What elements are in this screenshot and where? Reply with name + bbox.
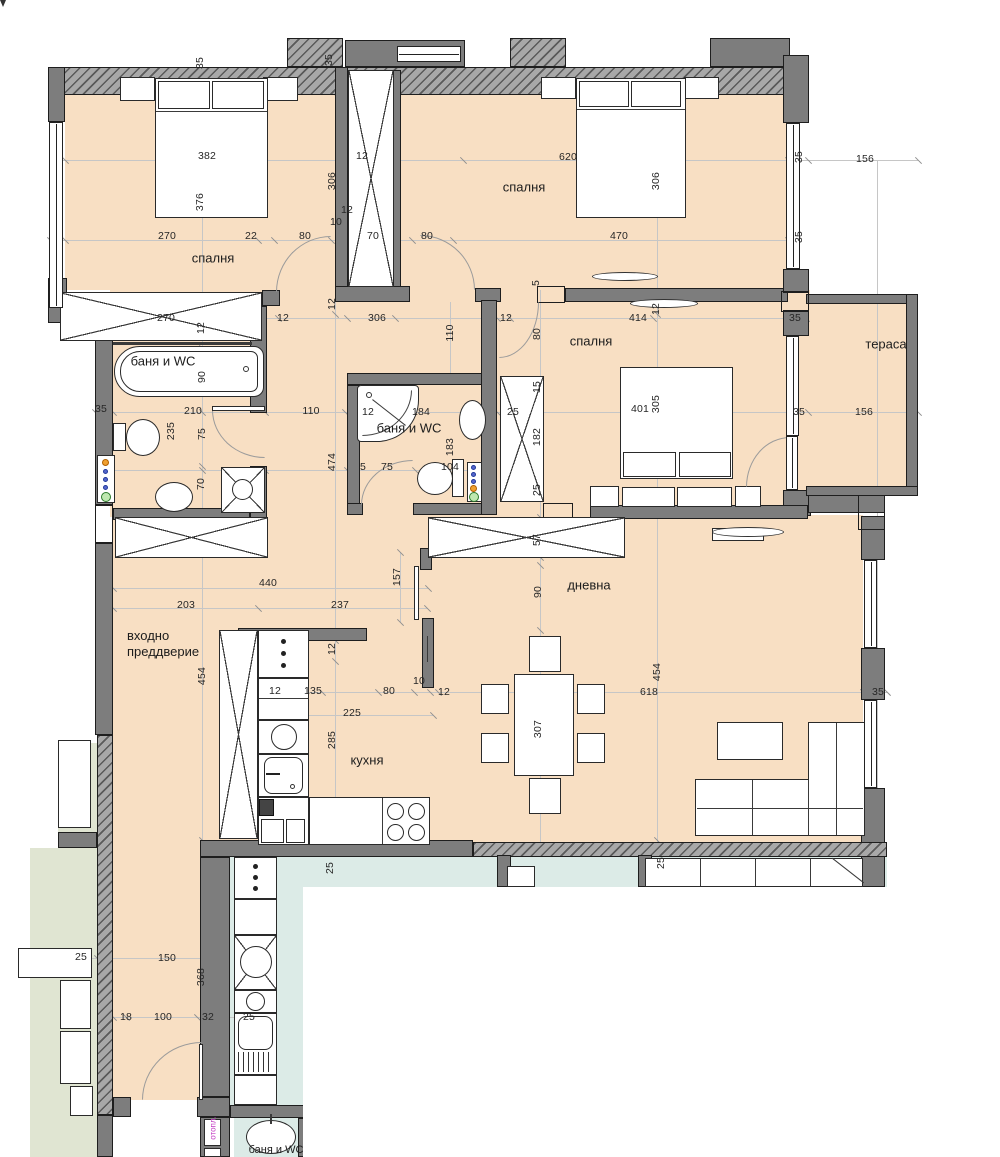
- room-label-heating-riser: отопл.: [209, 1116, 218, 1140]
- room-label-bath-1: баня и WC: [131, 354, 196, 369]
- wall-junction: [95, 505, 113, 543]
- neighbor-green-box: [70, 1086, 93, 1116]
- dim-label: 368: [195, 968, 207, 986]
- bed-line: [577, 109, 685, 110]
- window-bedroom1: [49, 122, 63, 308]
- dim-label: 182: [531, 428, 543, 446]
- dim-label: 32: [202, 1011, 214, 1023]
- dim-label: 35: [793, 231, 805, 243]
- dim-label: 10: [413, 675, 425, 687]
- dim-label: 135: [304, 685, 322, 697]
- chair: [529, 778, 561, 814]
- dim-label: 57: [531, 534, 543, 546]
- riser-dot-blue: [471, 472, 476, 477]
- riser-dot-blue: [103, 477, 108, 482]
- wardrobe: [115, 517, 268, 558]
- dim-label: 80: [299, 230, 311, 242]
- wardrobe: [219, 630, 258, 839]
- wall-bath2-top: [347, 373, 483, 385]
- dim-line: [400, 552, 401, 622]
- dim-label: 454: [651, 663, 663, 681]
- wall-door-jamb: [113, 1097, 131, 1117]
- neighbor-kitchen-unit: [234, 899, 277, 935]
- dim-label: 454: [196, 667, 208, 685]
- wall-terrace: [806, 294, 918, 304]
- dim-label: 35: [194, 57, 206, 69]
- wall-bath2-bottom: [413, 503, 483, 515]
- wall-chimney: [510, 38, 566, 67]
- neighbor-green-box: [58, 740, 91, 828]
- wall-door-jamb: [197, 1097, 230, 1117]
- dim-label: 401: [631, 403, 649, 415]
- sofa-line: [836, 723, 837, 835]
- dim-label: 382: [198, 150, 216, 162]
- sofa-divider: [700, 859, 701, 886]
- radiator: [712, 527, 784, 537]
- dining-table: [514, 674, 574, 776]
- unit-divider: [259, 698, 308, 699]
- dim-label: 307: [532, 720, 544, 738]
- riser-dot-blue: [471, 479, 476, 484]
- dim-label: 12: [356, 150, 368, 162]
- unit-dot: [281, 663, 286, 668]
- neighbor-circle: [246, 992, 265, 1011]
- toilet-bowl: [126, 419, 160, 456]
- wash-basin: [459, 400, 486, 440]
- dim-label: 203: [177, 599, 195, 611]
- wall: [262, 290, 280, 306]
- room-label-neighbor-bath: баня и WC: [249, 1144, 304, 1156]
- window-living-2: [864, 700, 877, 788]
- radiator: [630, 299, 698, 308]
- bed-line: [156, 111, 267, 112]
- dim-label: 110: [302, 405, 319, 417]
- room-label-kitchen: кухня: [350, 753, 383, 768]
- counter-divider: [382, 798, 383, 844]
- unit-dot: [253, 875, 258, 880]
- neighbor-drainboard: [238, 1052, 273, 1072]
- undrawn-region: [303, 887, 1000, 1157]
- cooktop-burner: [408, 803, 425, 820]
- room-label-bath-2: баня и WC: [377, 421, 442, 436]
- kitchen-unit: [258, 678, 309, 720]
- unit-dot: [281, 639, 286, 644]
- neighbor-green-sofa: [60, 1031, 91, 1084]
- dim-label: 80: [383, 685, 395, 697]
- dim-label: 470: [610, 230, 628, 242]
- sliding-door-track: [427, 636, 428, 662]
- radiator: [592, 272, 658, 281]
- dim-label: 5: [530, 280, 542, 286]
- dim-label: 157: [391, 568, 403, 586]
- washer-box: [286, 819, 305, 843]
- sofa-line: [697, 808, 863, 809]
- washer-box: [261, 819, 284, 843]
- nightstand: [684, 77, 719, 99]
- neighbor-bath-tap: [270, 1114, 272, 1124]
- dim-label: 270: [157, 312, 175, 324]
- room-label-terrace: тераса: [865, 337, 906, 352]
- dim-label: 35: [323, 54, 335, 66]
- dim-label: 306: [326, 172, 338, 190]
- sliding-door-arrow-icon: [0, 0, 6, 7]
- dim-label: 306: [650, 172, 662, 190]
- dim-label: 305: [650, 395, 662, 413]
- wall: [335, 286, 410, 302]
- dim-label: 620: [559, 151, 577, 163]
- sofa-divider: [755, 859, 756, 886]
- boiler-circle: [271, 724, 297, 750]
- dim-label: 25: [243, 1011, 255, 1023]
- wall-junction: [858, 495, 885, 530]
- pillow: [631, 81, 681, 107]
- dim-label: 15: [531, 381, 543, 393]
- wall-exterior-left-lower: [97, 735, 113, 1115]
- pillow: [679, 452, 731, 477]
- dim-label: 12: [195, 322, 207, 334]
- dim-label: 12: [269, 685, 281, 697]
- room-label-bedroom-2: спалня: [503, 180, 546, 195]
- door-leaf-entrance: [199, 1044, 203, 1100]
- dim-label: 70: [367, 230, 379, 242]
- wardrobe: [428, 517, 625, 558]
- door-leaf-bath1: [212, 406, 265, 411]
- sink-tap: [266, 773, 280, 775]
- window-top: [397, 46, 461, 62]
- window-bedroom2: [786, 123, 800, 269]
- wall-neighbor-bath: [230, 1105, 306, 1118]
- window-living-1: [864, 560, 877, 648]
- cooktop-burner: [408, 824, 425, 841]
- dim-label: 75: [381, 461, 393, 473]
- neighbor-kitchen-unit: [234, 1075, 277, 1105]
- dim-label: 18: [120, 1011, 132, 1023]
- dim-label: 12: [500, 312, 512, 324]
- dim-label: 235: [165, 422, 177, 440]
- wall-terrace: [906, 294, 918, 496]
- dim-label: 35: [872, 686, 884, 698]
- dim-label: 10: [330, 216, 342, 228]
- dim-label: 270: [158, 230, 176, 242]
- bed-bench: [677, 487, 732, 507]
- dim-label: 414: [629, 312, 647, 324]
- dim-label: 100: [154, 1011, 172, 1023]
- pillow: [158, 81, 210, 109]
- riser-dot-blue: [471, 465, 476, 470]
- wall-bottom-hatched: [473, 842, 887, 857]
- dim-label: 75: [196, 428, 208, 440]
- dim-label: 12: [650, 303, 662, 315]
- wall-thin: [113, 342, 252, 345]
- dim-label: 5: [360, 461, 366, 473]
- bidet: [155, 482, 193, 512]
- sofa-divider: [810, 859, 811, 886]
- shower-drain: [232, 479, 253, 500]
- dim-label: 156: [855, 406, 873, 418]
- wall-junction: [781, 291, 809, 312]
- riser-dot-blue: [103, 469, 108, 474]
- dim-label: 80: [531, 328, 543, 340]
- riser-dot-blue: [103, 485, 108, 490]
- kitchen-sink: [264, 757, 303, 794]
- bathtub-tap-icon: [243, 366, 249, 372]
- wall: [783, 269, 809, 293]
- dim-label: 618: [640, 686, 658, 698]
- dim-label: 25: [324, 862, 336, 874]
- dim-label: 70: [195, 478, 207, 490]
- dim-label: 22: [245, 230, 257, 242]
- nightstand: [590, 486, 619, 507]
- chair: [481, 733, 509, 763]
- neighbor-green-sofa: [60, 980, 91, 1029]
- dim-line: [113, 608, 428, 609]
- unit-dot: [253, 886, 258, 891]
- riser-box: [204, 1148, 221, 1157]
- room-label-bedroom-3: спалня: [570, 334, 613, 349]
- dim-label: 35: [793, 151, 805, 163]
- room-label-living-room: дневна: [567, 578, 610, 593]
- neighbor-fridge: [507, 866, 535, 887]
- chair: [577, 733, 605, 763]
- dim-label: 184: [412, 406, 430, 418]
- dim-label: 156: [856, 153, 874, 165]
- cooktop-burner: [387, 824, 404, 841]
- wall-neighbor-green: [58, 832, 97, 848]
- wall-exterior-right: [783, 55, 809, 123]
- dim-label: 35: [95, 403, 107, 415]
- dim-label: 12: [341, 204, 353, 216]
- wall-hall-left: [95, 543, 113, 735]
- riser-dot-orange: [102, 459, 109, 466]
- dim-label: 210: [184, 405, 202, 417]
- window-bedroom3: [786, 336, 799, 436]
- wall: [97, 1115, 113, 1157]
- nightstand: [735, 486, 761, 507]
- sink-drain: [290, 784, 295, 789]
- dim-label: 306: [368, 312, 386, 324]
- washer-dark-box: [259, 799, 274, 816]
- riser-dot-green: [101, 492, 111, 502]
- pillow: [623, 452, 676, 477]
- dim-label: 90: [532, 586, 544, 598]
- dim-label: 440: [259, 577, 277, 589]
- wall-junction: [537, 286, 565, 303]
- room-label-entry-hall: входно преддверие: [127, 628, 219, 659]
- dim-label: 376: [194, 193, 206, 211]
- dim-label: 35: [789, 312, 801, 324]
- unit-dot: [281, 651, 286, 656]
- sofa-divider: [752, 780, 753, 835]
- wall-exterior-left: [48, 67, 65, 122]
- floor-plan-canvas: 3535382376306122702280708062030647035351…: [0, 0, 1000, 1157]
- dim-label: 150: [158, 952, 176, 964]
- riser-dot-green: [469, 492, 479, 502]
- nightstand: [263, 77, 298, 101]
- dim-label: 12: [362, 406, 374, 418]
- pillow: [579, 81, 629, 107]
- dim-label: 110: [444, 324, 456, 341]
- dim-label: 80: [421, 230, 433, 242]
- dim-label: 285: [326, 731, 338, 749]
- coffee-table: [717, 722, 783, 760]
- riser-dot-orange: [470, 485, 477, 492]
- neighbor-stove-circle: [240, 946, 272, 978]
- toilet-tank: [113, 423, 126, 451]
- dim-label: 25: [531, 484, 543, 496]
- unit-dot: [253, 864, 258, 869]
- dim-label: 12: [326, 298, 338, 310]
- nightstand: [120, 77, 155, 101]
- sliding-door-leaf: [414, 566, 419, 620]
- floor-terrace: [808, 304, 908, 487]
- dim-label: 104: [441, 461, 459, 473]
- dim-label: 183: [444, 438, 456, 456]
- bed-bench: [622, 487, 675, 507]
- sofa-divider: [808, 780, 809, 835]
- wall-shaft-right: [393, 70, 401, 288]
- terrace-door-leaf: [786, 436, 798, 490]
- dim-label: 90: [196, 371, 208, 383]
- nightstand: [541, 77, 576, 99]
- dim-label: 474: [326, 453, 338, 471]
- dim-label: 225: [343, 707, 361, 719]
- room-label-bedroom-1: спалня: [192, 251, 235, 266]
- dim-label: 25: [75, 951, 87, 963]
- wardrobe-shaft: [348, 70, 394, 287]
- pillow: [212, 81, 264, 109]
- wall: [710, 38, 790, 67]
- neighbor-sofa: [645, 858, 863, 887]
- cooktop-burner: [387, 803, 404, 820]
- chair: [529, 636, 561, 672]
- chair: [577, 684, 605, 714]
- dim-label: 25: [655, 857, 667, 869]
- dim-label: 237: [331, 599, 349, 611]
- dim-label: 12: [326, 643, 338, 655]
- dim-label: 25: [507, 406, 519, 418]
- shower-head-icon: [366, 392, 372, 398]
- chair: [481, 684, 509, 714]
- dim-label: 12: [277, 312, 289, 324]
- dim-label: 35: [793, 406, 805, 418]
- dim-label: 12: [438, 686, 450, 698]
